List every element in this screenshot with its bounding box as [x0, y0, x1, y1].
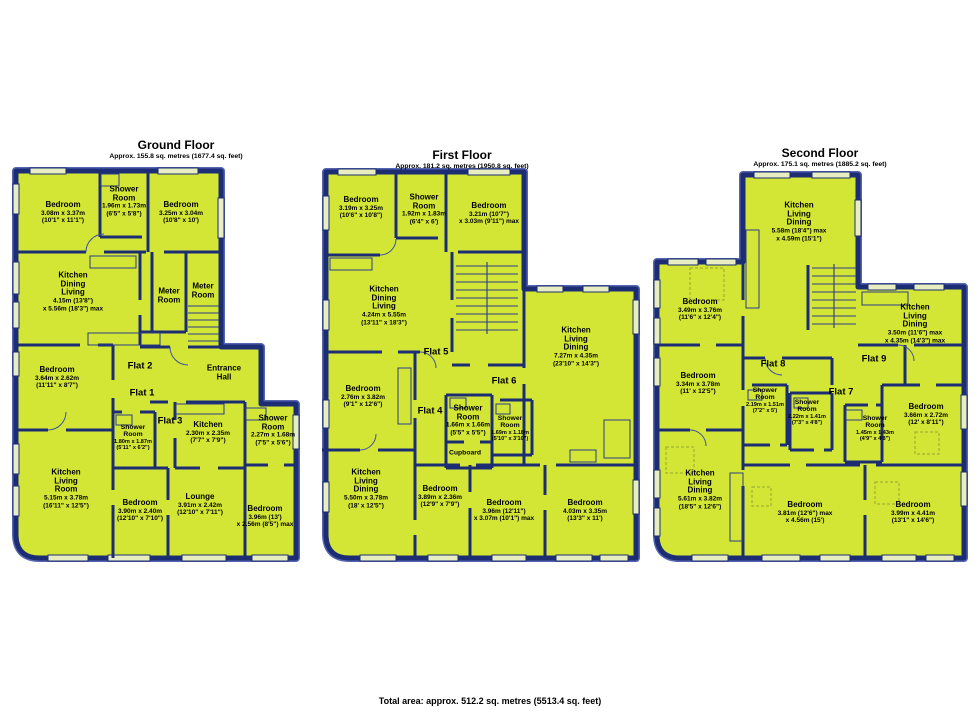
room-dims: 3.66m x 2.72m — [904, 412, 948, 420]
room-label: Kitchen2.30m x 2.35m(7'7" x 7'9") — [186, 421, 230, 445]
room-label: Shower Room2.22m x 1.41m(7'3" x 4'8") — [788, 399, 826, 427]
room-dims: 3.21m (10'7") — [459, 211, 519, 219]
flat-label: Flat 1 — [130, 388, 155, 399]
room-name: Bedroom — [237, 505, 294, 514]
room-dims: x 5.56m (18'3") max — [43, 305, 103, 313]
room-dims: (10'8" x 10') — [159, 217, 203, 225]
room-label: Bedroom3.90m x 2.40m(12'10" x 7'10") — [117, 499, 163, 523]
room-name: Bedroom — [891, 501, 935, 510]
room-label: Lounge3.91m x 2.42m(12'10" x 7'11") — [177, 493, 223, 517]
room-name: Bedroom — [341, 385, 385, 394]
room-dims: 3.08m x 3.37m — [41, 210, 85, 218]
room-name: Shower Room — [402, 194, 446, 211]
room-label: Shower Room2.19m x 1.51m(7'2" x 5') — [746, 387, 784, 415]
room-name: Kitchen Living Dining — [344, 468, 388, 494]
room-dims: (9'1" x 12'6") — [341, 401, 385, 409]
room-dims: 5.61m x 3.82m — [678, 495, 722, 503]
room-dims: 3.91m x 2.42m — [177, 502, 223, 510]
room-label: Kitchen Dining Living4.15m (13'8")x 5.56… — [43, 271, 103, 312]
flat-label: Flat 7 — [829, 387, 854, 398]
second-floor-area: Approx. 175.1 sq. metres (1885.2 sq. fee… — [753, 161, 886, 168]
flat-label: Flat 8 — [761, 359, 786, 370]
room-dims: (12'10" x 7'10") — [117, 515, 163, 523]
total-area-note: Total area: approx. 512.2 sq. metres (55… — [0, 696, 980, 706]
room-dims: x 4.35m (14'3") max — [885, 337, 945, 345]
room-dims: (6'4" x 6') — [402, 219, 446, 227]
room-dims: 1.69m x 1.18m — [491, 430, 529, 437]
ground-floor-header: Ground Floor Approx. 155.8 sq. metres (1… — [109, 138, 242, 160]
room-label: Bedroom3.89m x 2.36m(12'9" x 7'9") — [418, 485, 462, 509]
room-dims: (16'11" x 12'5") — [43, 502, 89, 510]
room-label: Kitchen Living Dining5.50m x 3.78m(18' x… — [344, 468, 388, 509]
room-label: Shower Room1.80m x 1.87m(5'11" x 6'2") — [114, 424, 152, 452]
room-dims: (18' x 12'5") — [344, 502, 388, 510]
room-label: Bedroom3.34m x 3.78m(11' x 12'5") — [676, 372, 720, 396]
room-dims: (7'3" x 4'8") — [788, 420, 826, 427]
room-name: Bedroom — [41, 201, 85, 210]
floorplan-graphics — [0, 0, 980, 712]
room-dims: 3.64m x 2.62m — [35, 375, 79, 383]
room-label: Kitchen Dining Living4.24m x 5.55m(13'11… — [361, 285, 407, 326]
room-label: Shower Room1.96m x 1.73m(6'5" x 5'8") — [102, 186, 146, 219]
room-dims: (13'11" x 18'3") — [361, 319, 407, 327]
room-label: Bedroom3.66m x 2.72m(12' x 8'11") — [904, 403, 948, 427]
room-name: Kitchen Dining Living — [361, 285, 407, 311]
first-floor-title: First Floor — [395, 148, 528, 162]
room-label: Shower Room2.27m x 1.68m(7'5" x 5'6") — [251, 415, 295, 448]
room-name: Kitchen Living Dining — [678, 469, 722, 495]
room-dims: (5'11" x 6'2") — [114, 445, 152, 452]
room-dims: 7.27m x 4.35m — [553, 352, 599, 360]
room-name: Bedroom — [474, 499, 534, 508]
room-label: Bedroom3.19m x 3.25m(10'6" x 10'8") — [339, 196, 383, 220]
flat-label: Flat 9 — [862, 354, 887, 365]
room-name: Kitchen Living Dining — [885, 303, 945, 329]
room-dims: 3.96m (13') — [237, 514, 294, 522]
second-floor-title: Second Floor — [753, 146, 886, 160]
room-dims: (13'1" x 14'6") — [891, 517, 935, 525]
room-name: Kitchen Living Dining — [553, 326, 599, 352]
ground-floor-area: Approx. 155.8 sq. metres (1677.4 sq. fee… — [109, 153, 242, 160]
ground-floor-title: Ground Floor — [109, 138, 242, 152]
flat-label: Flat 3 — [158, 416, 183, 427]
room-label: Kitchen Living Dining3.50m (11'6") maxx … — [885, 303, 945, 344]
room-dims: (6'5" x 5'8") — [102, 211, 146, 219]
room-dims: 3.50m (11'6") max — [885, 329, 945, 337]
room-name: Shower Room — [856, 415, 894, 430]
room-name: Kitchen Dining Living — [43, 271, 103, 297]
room-dims: (11'6" x 12'4") — [678, 314, 722, 322]
room-name: Cupboard — [449, 449, 481, 456]
room-name: Meter Room — [192, 282, 215, 299]
room-name: Meter Room — [158, 287, 181, 304]
room-label: Bedroom3.96m (13')x 2.56m (8'5") max — [237, 505, 294, 529]
floorplan-page: Ground Floor Approx. 155.8 sq. metres (1… — [0, 0, 980, 712]
room-dims: 1.80m x 1.87m — [114, 439, 152, 446]
room-label: Shower Room1.45m x 1.43m(4'9" x 4'8") — [856, 415, 894, 443]
room-dims: 2.22m x 1.41m — [788, 414, 826, 421]
room-dims: 2.19m x 1.51m — [746, 402, 784, 409]
room-label: Bedroom3.08m x 3.37m(10'1" x 11'1") — [41, 201, 85, 225]
room-dims: 2.30m x 2.35m — [186, 430, 230, 438]
room-dims: x 3.03m (9'11") max — [459, 218, 519, 226]
room-label: Bedroom3.25m x 3.04m(10'8" x 10') — [159, 201, 203, 225]
room-name: Shower Room — [446, 405, 490, 422]
room-label: Bedroom3.49m x 3.76m(11'6" x 12'4") — [678, 298, 722, 322]
room-dims: 1.66m x 1.66m — [446, 422, 490, 430]
room-name: Shower Room — [788, 399, 826, 414]
room-dims: (4'9" x 4'8") — [856, 436, 894, 443]
room-dims: 3.96m (12'11") — [474, 508, 534, 516]
room-name: Kitchen Living Room — [43, 468, 89, 494]
room-name: Shower Room — [102, 186, 146, 203]
room-label: Kitchen Living Dining5.58m (18'4") maxx … — [772, 201, 827, 242]
room-label: Meter Room — [192, 282, 215, 299]
room-dims: (13'3" x 11') — [563, 515, 607, 523]
room-name: Bedroom — [778, 501, 833, 510]
room-name: Bedroom — [459, 202, 519, 211]
room-dims: (5'10" x 3'10") — [491, 436, 529, 443]
room-name: Bedroom — [676, 372, 720, 381]
room-dims: 2.76m x 3.82m — [341, 394, 385, 402]
room-dims: 5.50m x 3.78m — [344, 494, 388, 502]
room-name: Shower Room — [114, 424, 152, 439]
room-name: Bedroom — [117, 499, 163, 508]
room-dims: 4.03m x 3.35m — [563, 508, 607, 516]
room-dims: x 4.56m (15') — [778, 517, 833, 525]
room-dims: 3.90m x 2.40m — [117, 508, 163, 516]
room-dims: 1.45m x 1.43m — [856, 430, 894, 437]
room-name: Lounge — [177, 493, 223, 502]
room-dims: x 4.59m (15'1") — [772, 235, 827, 243]
room-label: Bedroom3.64m x 2.62m(11'11" x 8'7") — [35, 366, 79, 390]
room-dims: 1.96m x 1.73m — [102, 203, 146, 211]
room-dims: (7'7" x 7'9") — [186, 437, 230, 445]
room-name: Kitchen Living Dining — [772, 201, 827, 227]
room-label: Bedroom3.99m x 4.41m(13'1" x 14'6") — [891, 501, 935, 525]
room-dims: 1.92m x 1.83m — [402, 211, 446, 219]
room-dims: (18'5" x 12'6") — [678, 503, 722, 511]
room-label: Bedroom3.96m (12'11")x 3.07m (10'1") max — [474, 499, 534, 523]
room-label: Shower Room1.66m x 1.66m(5'5" x 5'5") — [446, 405, 490, 438]
room-dims: (12' x 8'11") — [904, 419, 948, 427]
room-dims: 4.24m x 5.55m — [361, 311, 407, 319]
room-name: Shower Room — [491, 415, 529, 430]
room-label: Kitchen Living Dining7.27m x 4.35m(23'10… — [553, 326, 599, 367]
flat-label: Flat 5 — [424, 347, 449, 358]
room-label: Shower Room1.92m x 1.83m(6'4" x 6') — [402, 194, 446, 227]
room-label: Entrance Hall — [207, 364, 241, 381]
room-dims: x 2.56m (8'5") max — [237, 521, 294, 529]
room-dims: 3.49m x 3.76m — [678, 307, 722, 315]
room-name: Shower Room — [251, 415, 295, 432]
first-floor-area: Approx. 181.2 sq. metres (1950.8 sq. fee… — [395, 163, 528, 170]
room-dims: 5.15m x 3.78m — [43, 494, 89, 502]
room-dims: 3.99m x 4.41m — [891, 510, 935, 518]
room-dims: 2.27m x 1.68m — [251, 432, 295, 440]
first-floor-header: First Floor Approx. 181.2 sq. metres (19… — [395, 148, 528, 170]
room-name: Kitchen — [186, 421, 230, 430]
room-name: Entrance Hall — [207, 364, 241, 381]
room-dims: (11'11" x 8'7") — [35, 382, 79, 390]
room-dims: (10'1" x 11'1") — [41, 217, 85, 225]
room-dims: 3.25m x 3.04m — [159, 210, 203, 218]
room-dims: (23'10" x 14'3") — [553, 360, 599, 368]
room-name: Bedroom — [35, 366, 79, 375]
room-label: Shower Room1.69m x 1.18m(5'10" x 3'10") — [491, 415, 529, 443]
room-label: Kitchen Living Dining5.61m x 3.82m(18'5"… — [678, 469, 722, 510]
room-dims: x 3.07m (10'1") max — [474, 515, 534, 523]
room-dims: 3.34m x 3.78m — [676, 381, 720, 389]
room-label: Cupboard — [449, 449, 481, 456]
flat-label: Flat 4 — [418, 406, 443, 417]
room-dims: (7'2" x 5') — [746, 408, 784, 415]
room-dims: 3.81m (12'6") max — [778, 510, 833, 518]
flat-label: Flat 6 — [492, 376, 517, 387]
room-name: Bedroom — [339, 196, 383, 205]
room-dims: (12'9" x 7'9") — [418, 501, 462, 509]
room-label: Meter Room — [158, 287, 181, 304]
room-dims: (11' x 12'5") — [676, 388, 720, 396]
room-dims: (5'5" x 5'5") — [446, 430, 490, 438]
room-label: Bedroom3.81m (12'6") maxx 4.56m (15') — [778, 501, 833, 525]
room-name: Bedroom — [678, 298, 722, 307]
room-dims: (10'6" x 10'8") — [339, 212, 383, 220]
room-name: Bedroom — [904, 403, 948, 412]
room-label: Bedroom3.21m (10'7")x 3.03m (9'11") max — [459, 202, 519, 226]
room-dims: 3.19m x 3.25m — [339, 205, 383, 213]
flat-label: Flat 2 — [128, 361, 153, 372]
room-dims: (7'5" x 5'6") — [251, 440, 295, 448]
room-name: Bedroom — [159, 201, 203, 210]
room-label: Bedroom4.03m x 3.35m(13'3" x 11') — [563, 499, 607, 523]
room-dims: 3.89m x 2.36m — [418, 494, 462, 502]
room-dims: 5.58m (18'4") max — [772, 227, 827, 235]
second-floor-header: Second Floor Approx. 175.1 sq. metres (1… — [753, 146, 886, 168]
room-name: Bedroom — [418, 485, 462, 494]
room-dims: 4.15m (13'8") — [43, 297, 103, 305]
room-name: Bedroom — [563, 499, 607, 508]
room-name: Shower Room — [746, 387, 784, 402]
room-label: Kitchen Living Room5.15m x 3.78m(16'11" … — [43, 468, 89, 509]
room-dims: (12'10" x 7'11") — [177, 509, 223, 517]
room-label: Bedroom2.76m x 3.82m(9'1" x 12'6") — [341, 385, 385, 409]
